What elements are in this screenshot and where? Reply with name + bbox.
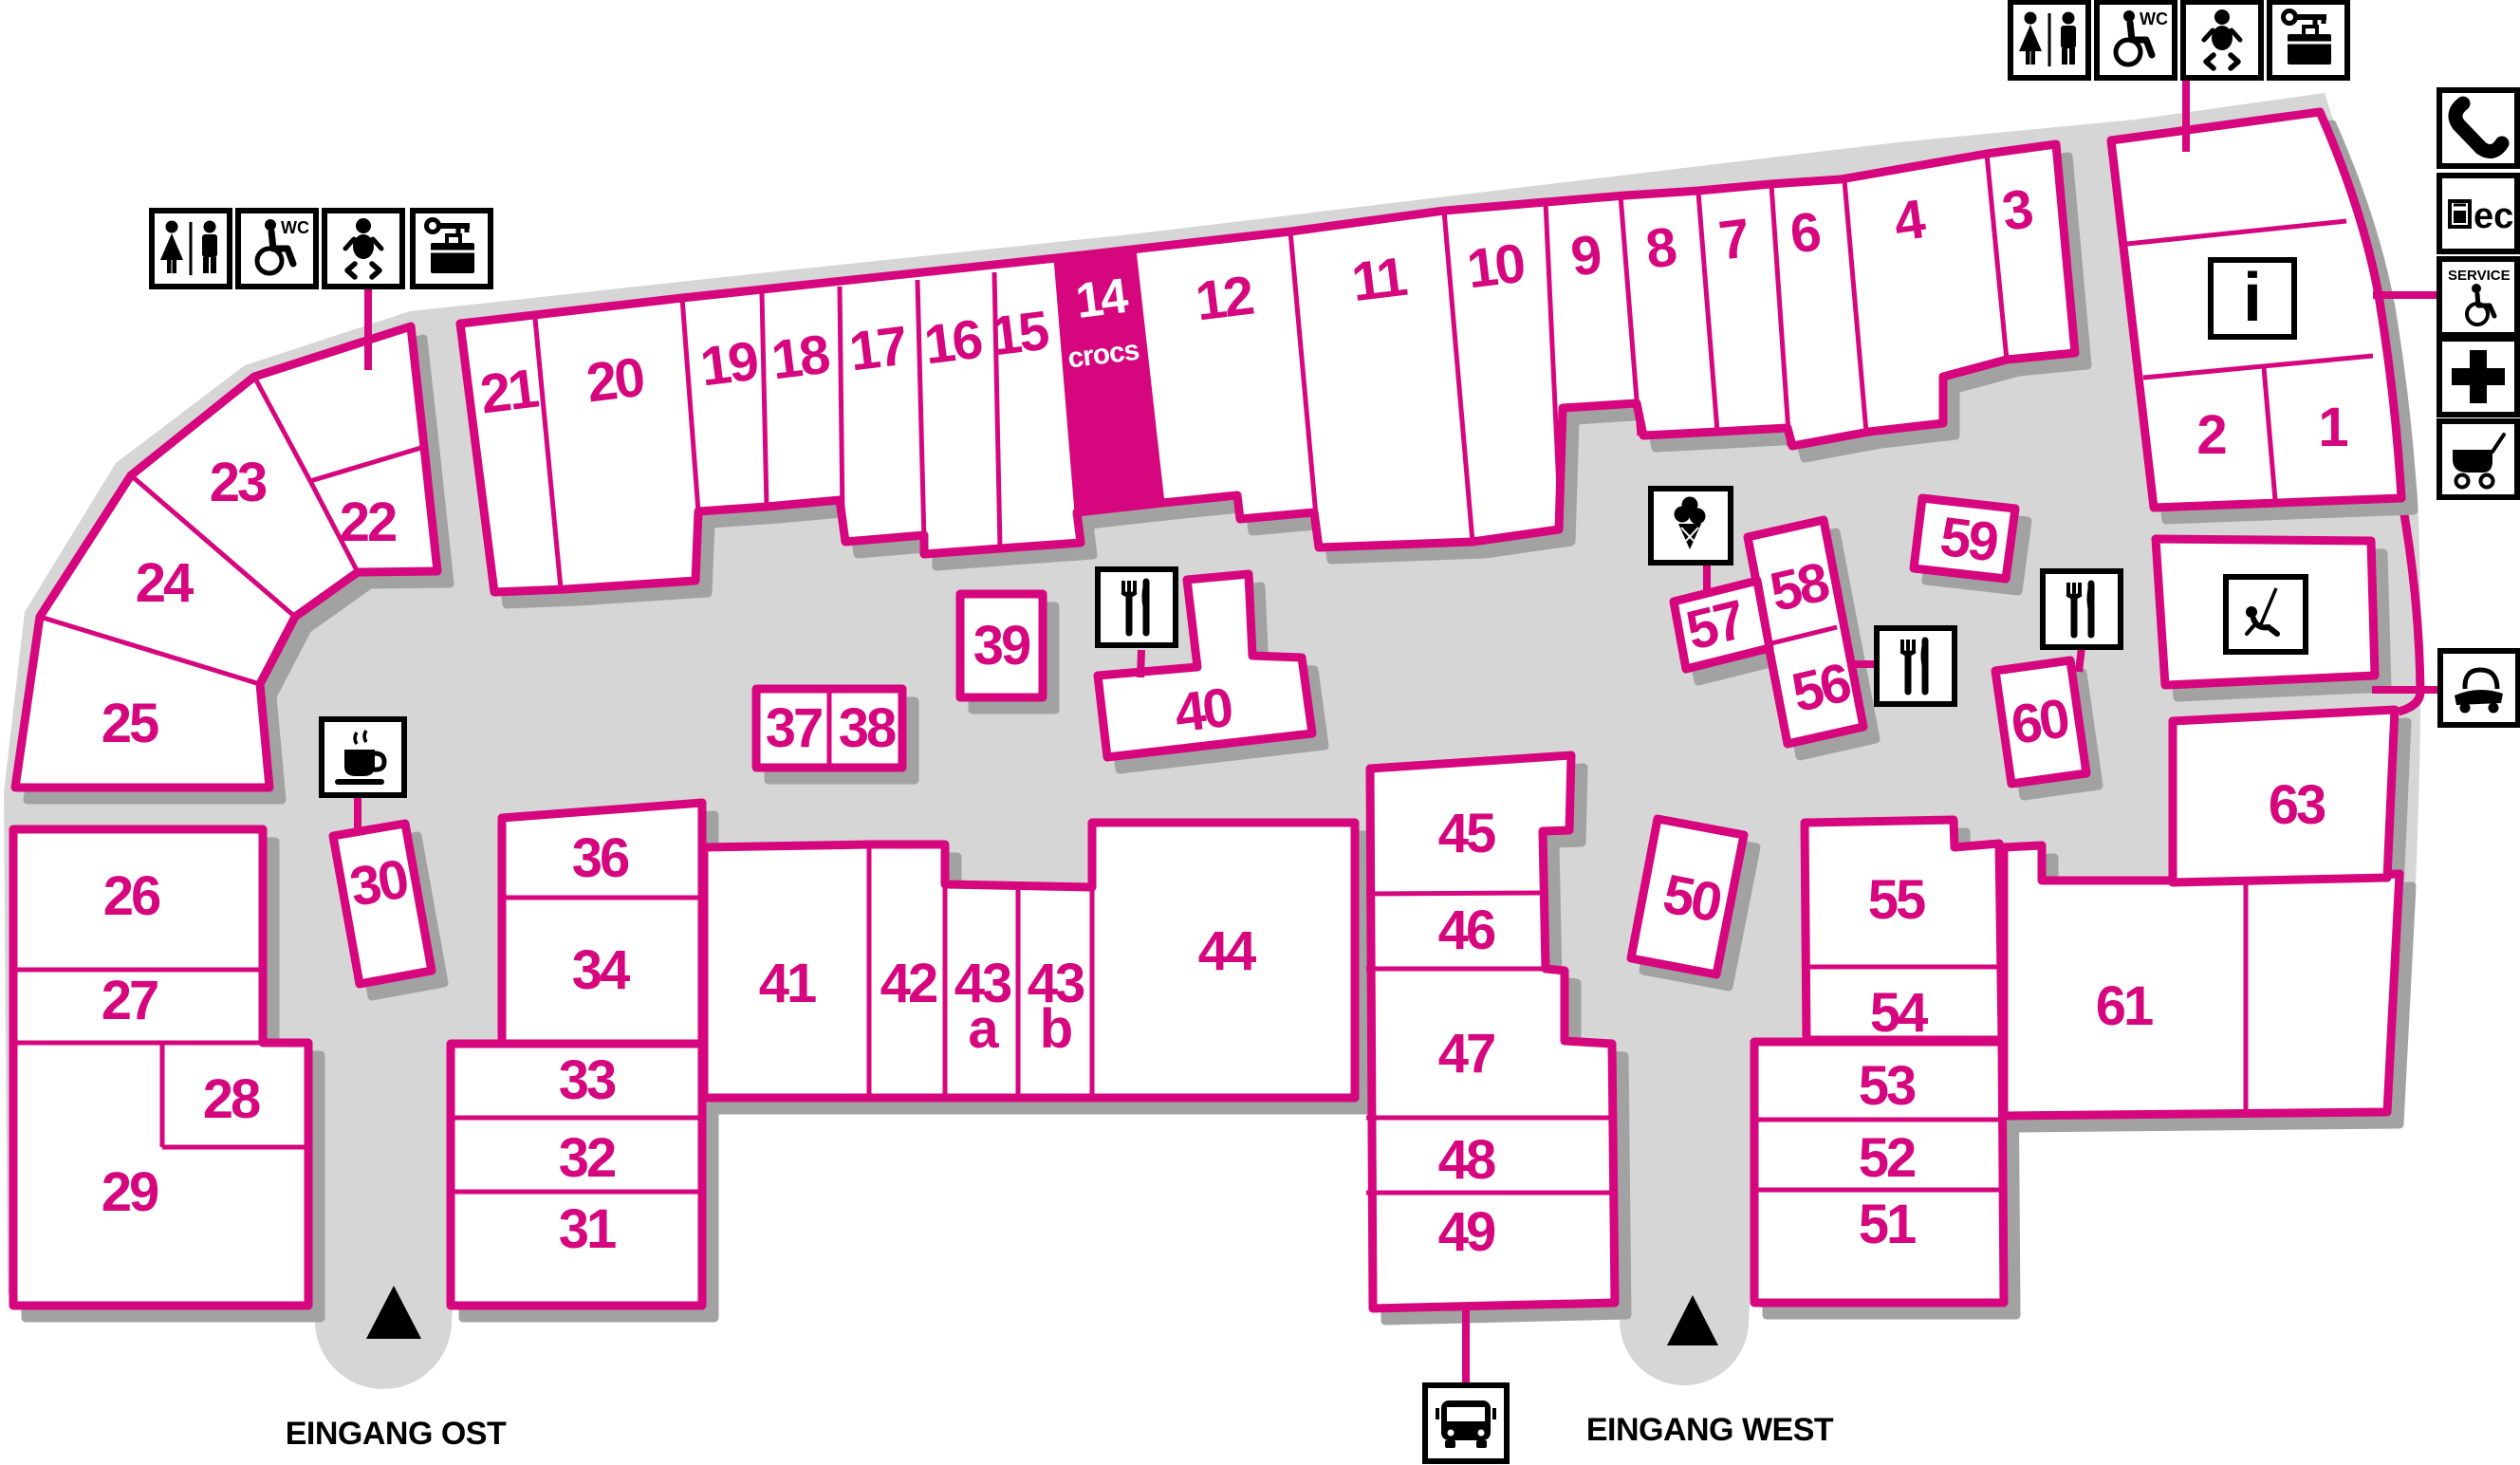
svg-text:37: 37 (766, 697, 822, 759)
svg-text:63: 63 (2269, 774, 2325, 836)
svg-text:EINGANG WEST: EINGANG WEST (1586, 1412, 1834, 1448)
svg-text:a: a (968, 998, 999, 1060)
svg-text:48: 48 (1438, 1129, 1495, 1191)
svg-text:21: 21 (477, 358, 542, 426)
svg-text:18: 18 (769, 324, 833, 392)
svg-text:28: 28 (203, 1068, 260, 1130)
svg-text:19: 19 (697, 330, 762, 399)
svg-text:39: 39 (973, 615, 1030, 677)
svg-text:61: 61 (2096, 975, 2153, 1037)
svg-text:45: 45 (1438, 803, 1495, 864)
svg-text:53: 53 (1859, 1055, 1916, 1117)
svg-text:59: 59 (1936, 506, 2001, 574)
svg-text:11: 11 (1348, 246, 1410, 313)
svg-text:10: 10 (1464, 232, 1528, 301)
svg-text:54: 54 (1870, 982, 1928, 1044)
svg-text:40: 40 (1172, 677, 1235, 745)
svg-text:1: 1 (2318, 397, 2347, 458)
svg-text:52: 52 (1859, 1127, 1915, 1189)
svg-text:20: 20 (584, 346, 647, 415)
svg-text:44: 44 (1198, 920, 1256, 982)
svg-text:32: 32 (559, 1127, 615, 1189)
svg-text:51: 51 (1859, 1194, 1916, 1255)
svg-text:29: 29 (102, 1161, 158, 1223)
svg-text:23: 23 (210, 452, 267, 513)
svg-text:60: 60 (2008, 687, 2072, 756)
svg-text:49: 49 (1438, 1201, 1495, 1263)
svg-text:12: 12 (1193, 265, 1256, 333)
svg-text:EINGANG OST: EINGANG OST (286, 1416, 507, 1452)
svg-text:16: 16 (921, 308, 986, 377)
svg-text:46: 46 (1438, 899, 1495, 961)
svg-text:i: i (2243, 260, 2262, 336)
svg-text:27: 27 (102, 970, 157, 1031)
svg-text:30: 30 (345, 848, 412, 918)
svg-text:36: 36 (572, 827, 629, 889)
svg-text:41: 41 (759, 953, 816, 1014)
svg-text:15: 15 (988, 300, 1052, 368)
svg-text:47: 47 (1438, 1023, 1494, 1085)
svg-text:38: 38 (839, 697, 896, 759)
svg-text:55: 55 (1868, 869, 1925, 931)
svg-text:SERVICE: SERVICE (2448, 268, 2511, 284)
svg-text:17: 17 (846, 315, 910, 383)
svg-text:ec: ec (2474, 196, 2513, 236)
svg-text:14: 14 (1073, 269, 1132, 329)
svg-text:25: 25 (102, 693, 158, 754)
svg-text:26: 26 (103, 865, 160, 927)
svg-text:22: 22 (340, 491, 396, 553)
svg-text:24: 24 (136, 552, 194, 614)
svg-text:2: 2 (2196, 404, 2225, 466)
svg-text:31: 31 (559, 1198, 616, 1260)
svg-text:33: 33 (559, 1049, 616, 1111)
svg-text:b: b (1040, 998, 1072, 1060)
svg-text:42: 42 (880, 953, 936, 1014)
svg-text:34: 34 (572, 939, 630, 1001)
